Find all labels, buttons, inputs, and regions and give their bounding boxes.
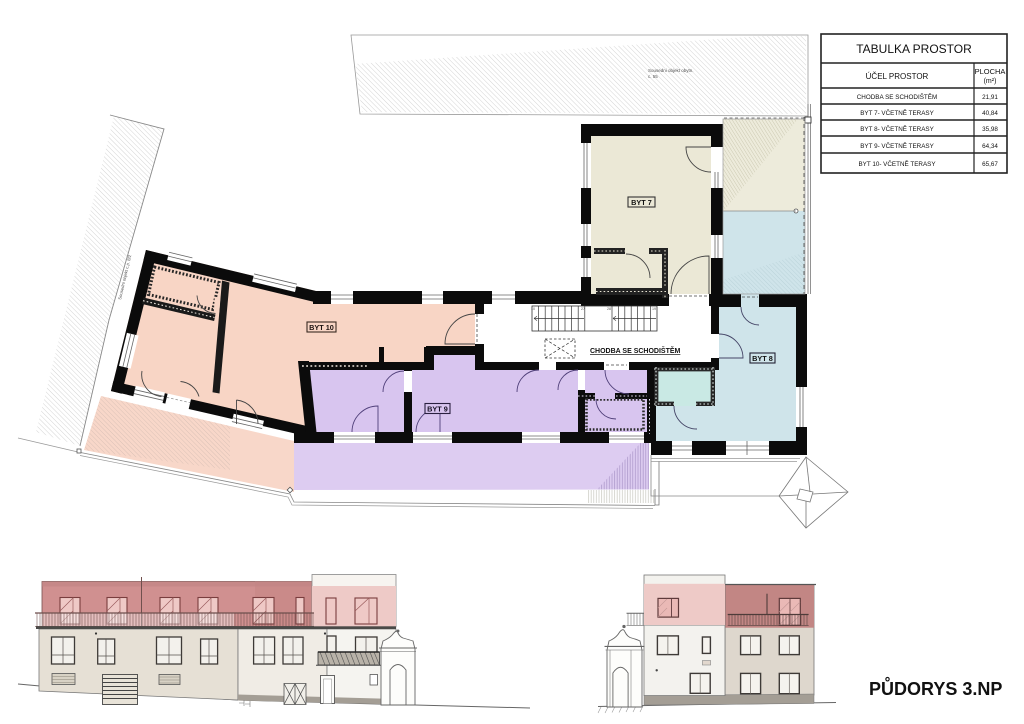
svg-text:(m²): (m²) <box>984 78 997 85</box>
svg-text:64,34: 64,34 <box>982 143 998 150</box>
svg-text:21,91: 21,91 <box>982 94 998 101</box>
svg-text:CHODBA SE SCHODIŠTĚM: CHODBA SE SCHODIŠTĚM <box>590 346 681 355</box>
svg-text:28: 28 <box>607 307 611 311</box>
svg-text:BYT 7- VČETNĚ TERASY: BYT 7- VČETNĚ TERASY <box>860 108 934 117</box>
svg-text:65,67: 65,67 <box>982 161 998 168</box>
svg-text:ÚČEL PROSTOR: ÚČEL PROSTOR <box>866 72 929 81</box>
svg-text:CHODBA SE SCHODIŠTĚM: CHODBA SE SCHODIŠTĚM <box>857 92 937 101</box>
svg-text:35,98: 35,98 <box>982 126 998 133</box>
svg-text:BYT 9: BYT 9 <box>427 405 448 414</box>
svg-text:BYT 7: BYT 7 <box>631 198 652 207</box>
svg-text:TABULKA PROSTOR: TABULKA PROSTOR <box>856 42 972 56</box>
svg-text:BYT 8- VČETNĚ TERASY: BYT 8- VČETNĚ TERASY <box>860 124 934 133</box>
svg-text:Sousedni objekt obytn.: Sousedni objekt obytn. <box>648 68 694 73</box>
svg-text:10: 10 <box>531 307 535 311</box>
svg-text:BYT 9- VČETNĚ TERASY: BYT 9- VČETNĚ TERASY <box>860 141 934 150</box>
svg-text:PLOCHA: PLOCHA <box>975 67 1006 76</box>
svg-text:PŮDORYS 3.NP: PŮDORYS 3.NP <box>869 677 1002 699</box>
svg-text:BYT 10: BYT 10 <box>309 323 334 332</box>
svg-text:40,84: 40,84 <box>982 110 998 117</box>
svg-text:c. 55: c. 55 <box>648 74 658 79</box>
svg-text:27: 27 <box>581 307 585 311</box>
svg-text:19: 19 <box>652 307 656 311</box>
svg-text:BYT 10- VČETNĚ TERASY: BYT 10- VČETNĚ TERASY <box>858 159 936 168</box>
svg-text:BYT 8: BYT 8 <box>752 354 773 363</box>
